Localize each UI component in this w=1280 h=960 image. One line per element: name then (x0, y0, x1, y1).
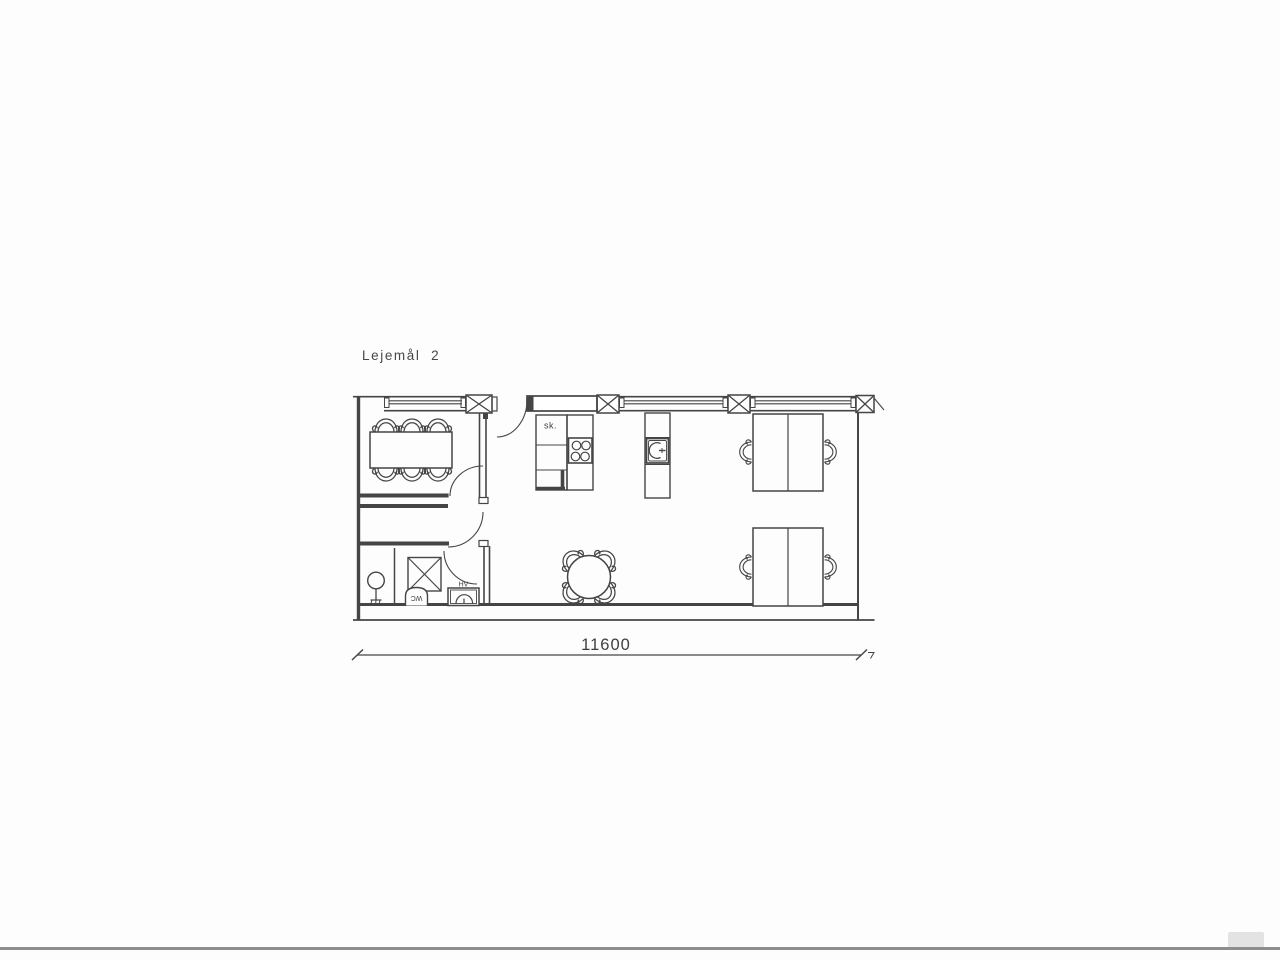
window-post (461, 398, 466, 408)
column-x-2 (597, 395, 619, 413)
door-jamb (479, 541, 488, 547)
burner (581, 452, 590, 461)
toilet: WC (406, 588, 428, 606)
desk-group-north (740, 414, 837, 491)
chair-icon (825, 555, 837, 579)
column-x-4 (856, 396, 884, 413)
chair-icon (372, 419, 399, 432)
window-post (385, 398, 390, 408)
window-post (723, 398, 728, 408)
stove (569, 438, 593, 463)
window-band-2 (619, 397, 728, 411)
chair-icon (424, 419, 451, 432)
window-band-1 (384, 397, 466, 411)
wc-label: WC (411, 594, 423, 601)
fixture-bowl (368, 572, 385, 589)
cabinet-label: sk. (544, 421, 557, 431)
meeting-table (370, 432, 452, 468)
door-swing (450, 466, 483, 496)
window-post (620, 398, 625, 408)
door-jamb (479, 498, 488, 504)
sink-bowl (649, 443, 660, 459)
chair-icon (398, 468, 425, 481)
hv-label: HV (459, 582, 469, 589)
round-table-group (556, 544, 621, 609)
chair-icon (372, 468, 399, 481)
kitchen: sk. (536, 413, 670, 498)
floor-drain-fixture (368, 572, 385, 606)
hand-basin: HV (448, 582, 479, 606)
chair-icon (740, 440, 752, 464)
sink-island (645, 413, 670, 498)
chair-icon (825, 440, 837, 464)
window-post (751, 398, 756, 408)
chair-icon (398, 419, 425, 432)
desk-group-south (740, 528, 837, 606)
door-jamb (527, 396, 534, 411)
wc-door-swing (444, 551, 477, 584)
corridor-door-swing (448, 512, 483, 547)
corridor (357, 498, 488, 548)
wall-over-kitchen (527, 396, 597, 411)
shower-area (408, 558, 441, 592)
window-band-3 (750, 397, 856, 411)
floor-plan-drawing: WC HV sk. (340, 385, 890, 670)
column-x-3 (728, 395, 750, 413)
burner (572, 441, 581, 450)
burner (571, 452, 580, 461)
wall-band (527, 396, 597, 411)
scan-edge-line-artifact (0, 947, 1280, 950)
scan-smudge-artifact (1228, 932, 1264, 948)
counter-column (567, 415, 593, 490)
fixture-base-tick (376, 600, 377, 606)
entrance-door-swing (497, 400, 527, 437)
scanned-floor-plan-page: Lejemål 2 (0, 0, 1280, 960)
dimension-value: 11600 (581, 636, 631, 654)
window-post (851, 398, 856, 408)
chair-icon (740, 555, 752, 579)
dimension: 11600 (352, 636, 874, 660)
wc-rooms: WC HV (368, 546, 490, 606)
dimension-end-mark (868, 653, 874, 659)
column-diagonal-tail (874, 398, 884, 410)
chair-icon (424, 468, 451, 481)
column-x-1 (466, 395, 492, 413)
round-table (568, 556, 611, 599)
burner (582, 441, 591, 450)
meeting-room (357, 413, 486, 498)
plan-title: Lejemål 2 (362, 348, 440, 363)
